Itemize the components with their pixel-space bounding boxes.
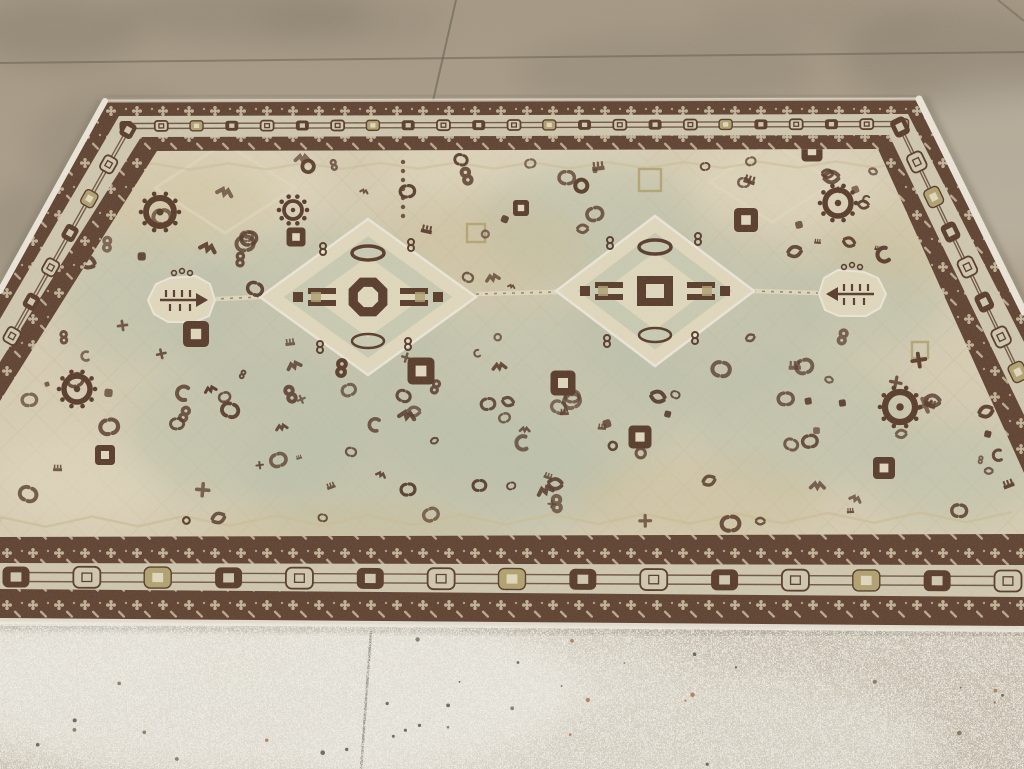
- grain-rect: [0, 0, 1024, 769]
- photo-grain-overlay: [0, 0, 1024, 769]
- rug-photo-scene: [0, 0, 1024, 769]
- rug-on-terrazzo-floor-photo: [0, 0, 1024, 769]
